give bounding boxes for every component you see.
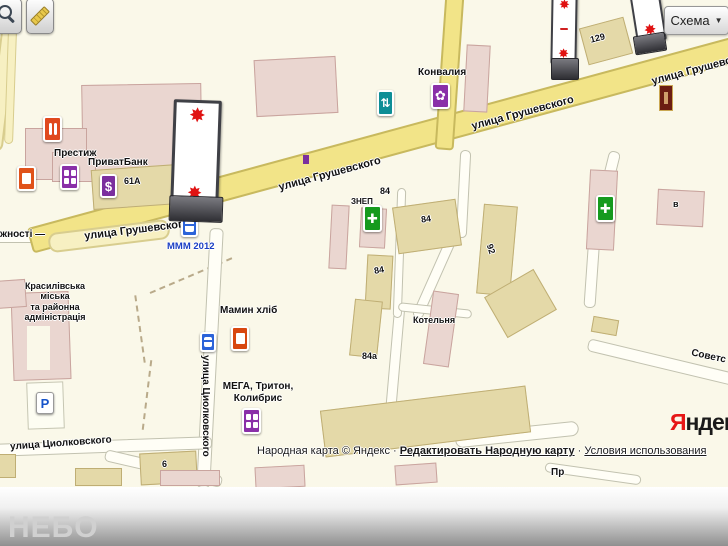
dollar-glyph: $ [105,179,112,194]
footpath-dashed [134,295,145,363]
building [254,465,305,487]
place-label-konvaliya: Конвалия [418,67,466,78]
shopping-bags-icon[interactable] [242,408,261,434]
place-label-mega: МЕГА, Тритон, Колибрис [222,381,294,404]
billboard-kiosk[interactable]: ✸ ✸ [550,0,577,64]
building-label-84: 84 [420,213,431,224]
building-admin-courtyard [27,326,50,370]
place-label-mamyn-khlib: Мамин хліб [220,305,277,316]
place-label-mmm2012: МММ 2012 [167,241,215,252]
bread-shop-icon[interactable] [231,326,249,351]
building [160,470,220,486]
edit-map-link[interactable]: Редактировать Народную карту [400,445,575,457]
building-label-61a: 61А [124,176,141,186]
building [0,454,16,478]
place-label-privatbank: ПриватБанк [88,157,148,168]
bank-icon[interactable]: $ [100,174,117,198]
crossing-arrows-icon[interactable]: ⇅ [377,90,394,116]
billboard-base [633,32,668,56]
ruler-icon [30,6,50,26]
street-label-pr: Пр [551,467,564,478]
building [75,468,122,486]
building [591,316,619,336]
measure-tool-button[interactable] [26,0,54,34]
building [254,56,339,117]
place-label-admin: Красилівська міська та районна адміністр… [16,281,94,322]
brand-text: НЕБО [8,511,99,545]
yandex-map-screenshot: улица Грушевского улица Грушевского улиц… [0,0,728,546]
cafe-glyph [22,173,31,184]
street-label-partial: жності — [0,229,45,240]
building-label-6: 6 [162,459,167,469]
street-label-tsiolkovskogo-vertical: улица Циолковского [200,355,211,483]
zoom-tool-button[interactable] [0,0,22,34]
small-poi-dot[interactable] [303,155,309,164]
road-sovetskaya [586,338,728,386]
building-label-84a: 84а [362,351,377,361]
billboard-kiosk[interactable]: ✸ ✸ [170,99,222,209]
splash-graphic: ✸ [189,106,206,127]
building-label-84: 84 [373,264,385,276]
map-type-dropdown[interactable]: Схема ▼ [664,6,728,35]
terms-link[interactable]: Условия использования [584,445,706,457]
shopping-bags-icon[interactable] [60,164,79,190]
cafe-icon[interactable] [17,166,36,191]
pharmacy-cross-icon[interactable]: ✚ [363,205,382,232]
attribution-text: Народная карта © Яндекс · [257,445,400,457]
building [394,463,437,486]
place-label-kotelnya: Котельня [413,315,455,325]
flower-shop-icon[interactable]: ✿ [431,83,450,109]
building [328,205,349,270]
footpath-dashed [142,360,153,430]
billboard-base [169,195,224,223]
building-label-84: 84 [380,186,390,196]
map-canvas[interactable]: улица Грушевского улица Грушевского улиц… [0,0,728,487]
building-84 [392,199,462,254]
building [463,44,490,112]
monument-icon[interactable] [659,85,673,111]
bottom-overlay-bar: НЕБО [0,487,728,546]
bus-stop-icon[interactable] [200,332,216,352]
building-label-v: в [673,199,679,209]
building-v [656,189,705,227]
store-icon[interactable] [43,116,62,142]
chevron-down-icon: ▼ [715,16,723,25]
billboard-base [551,58,579,80]
yandex-logo: Яндекс [670,409,728,436]
building-84a [349,299,383,359]
pharmacy-cross-icon[interactable]: ✚ [596,195,615,222]
parking-icon[interactable]: P [36,392,54,414]
map-attribution: Народная карта © Яндекс · Редактировать … [257,445,706,457]
map-type-label: Схема [670,13,709,28]
